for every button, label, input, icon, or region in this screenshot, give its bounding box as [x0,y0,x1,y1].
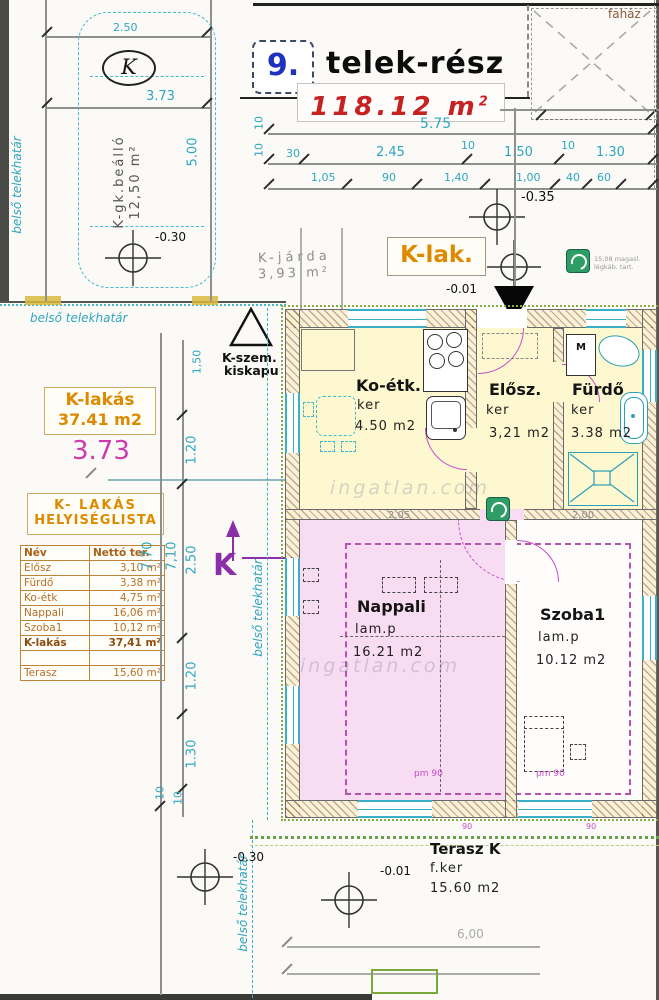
room-area-koetk: 4.50 m2 [355,419,416,434]
title-dashed-edge [527,5,529,97]
room-type-furdo: ker [571,403,594,418]
window [358,800,432,818]
dim-line [287,946,540,948]
parking-badge: K [121,55,137,79]
bed-pillow-line [524,728,564,729]
window [642,596,657,660]
table-row: Terasz15,60 m² [21,666,165,681]
plot-number: 9. [267,48,299,83]
door-size-label: pm 90 [536,769,565,779]
room-type-terasz: f.ker [430,861,463,876]
level-035: -0.35 [521,190,555,205]
dim-60: 60 [597,171,611,184]
hall-cabinet [482,333,538,359]
survey-point-icon [105,230,161,286]
plot-area-value: 118.12 m2 [310,92,492,122]
car-rearline [90,226,204,227]
dim-10: 10 [253,116,266,130]
survey-point-icon [321,872,377,928]
dim-150: 1.50 [504,145,533,160]
level-outside: -0.30 [233,850,264,864]
sink-drain [453,428,457,432]
table-row: Nappali16,06 m² [21,606,165,621]
room-area-terasz: 15.60 m2 [430,881,500,896]
dim-total-top: 5.75 [420,116,451,132]
room-name-terasz: Terasz K [430,840,500,858]
furniture [303,600,319,614]
stove-burner [429,353,445,369]
room-name-szoba1: Szoba1 [540,605,605,624]
window [285,558,300,616]
table-row: Ko-étk4,75 m² [21,591,165,606]
dim-10: 10 [154,786,167,800]
dim-line [160,333,162,995]
shower-cross-icon [568,452,636,504]
wall-bottom [285,800,657,818]
klak-box: K-lak. [387,237,486,276]
dim-chain: 2.50 [185,546,200,575]
col-name: Név [21,546,90,561]
dim-line [268,133,657,135]
room-type-szoba1: lam.p [538,630,580,645]
window-size-label: 90 [586,822,596,831]
garden-feature [371,969,438,994]
leader-line [108,479,288,481]
room-type-elosz: ker [486,403,509,418]
room-name-koetk: Ko-étk. [356,376,421,395]
door-opening [477,309,527,328]
window [348,309,426,328]
walkway-line [341,228,343,310]
dim-30: 30 [286,147,300,160]
window [285,393,300,453]
plot-area-box: 118.12 m2 [297,83,505,122]
door-opening [505,540,517,584]
table-row-empty [21,651,165,666]
tree-icon [486,497,510,521]
klak-label: K-lak. [400,242,473,268]
table-row-total: K-lakás37,41 m² [21,636,165,651]
fahaz-label: faház [608,7,641,21]
window-size-label: 90 [462,822,472,831]
floor-plan-canvas: 9. telek-rész 118.12 m2 faház 5.75 10 10… [0,0,659,1000]
level-entry: -0.01 [446,282,477,296]
boundary-dash-line [252,820,253,998]
dim-chain: 1.30 [185,740,200,769]
room-type-koetk: ker [357,398,380,413]
apartment-name: K-lakás [45,390,155,410]
road-curve [0,778,80,1000]
ground-line [500,109,659,111]
dim-10: 10 [172,791,185,805]
dim-tick [85,467,96,478]
boundary-label: belső telekhatár [251,559,265,656]
room-name-furdo: Fürdő [572,380,624,399]
dim-total-inner: 7,10 [165,542,180,571]
nightstand [570,744,586,760]
furniture [303,568,319,582]
dim-total-outer: 7.70 [141,542,156,571]
inner-dim: 2.05 [388,510,410,521]
dim-140: 1,40 [444,171,469,184]
terrace-edge-dots [250,836,659,839]
scan-edge-left [0,0,9,303]
kjarda-area: 3,93 m² [258,265,330,283]
boundary-label: belső telekhatár [236,854,250,951]
fence-post [25,296,61,305]
washing-machine: M [566,334,596,376]
dim-gate: 1,50 [191,350,204,375]
kjarda-label: K-járda [258,249,331,267]
road-curve-clip [0,778,80,1000]
level-terrace: -0.01 [380,864,411,878]
boundary-label: belső telekhatár [10,136,24,233]
stove-burner [446,332,462,348]
dim-40: 40 [566,171,580,184]
fahaz-cross-icon [530,7,654,117]
table-row: Szoba110,12 m² [21,621,165,636]
kitchen-sink-basin [431,401,461,429]
apartment-area: 37.41 m2 [45,410,155,429]
fahaz-outline [531,8,657,120]
kitchen-cabinet [301,329,355,371]
washing-machine-label: M [576,342,586,353]
shower-tray [568,452,638,506]
window [518,800,592,818]
dim-chain: 1.20 [185,662,200,691]
dim-105: 1,05 [311,171,336,184]
room-name-elosz: Elősz. [489,380,541,399]
room-name-nappali: Nappali [357,597,426,616]
axis-line [514,108,516,308]
survey-point-icon [177,849,233,905]
title-divider [253,3,659,6]
window [586,309,626,328]
dining-table [316,396,356,436]
bathtub-drain [631,414,635,418]
boundary-label: belső telekhatár [30,311,127,325]
dining-chair [341,441,356,452]
furniture [382,577,416,593]
plot-title: telek-rész [326,46,504,81]
dim-100: 1,00 [516,171,541,184]
utility-note: 15,08 magasl. légkáb. tart. [594,255,640,271]
plot-edge-dashed [654,0,657,188]
door-size-label: pm 90 [414,769,443,779]
dim-245: 2.45 [376,145,405,160]
window [285,686,300,744]
wall-elosz-furdo [553,328,564,510]
room-area-furdo: 3.38 m2 [571,426,632,441]
dim-chain: 1.20 [185,436,200,465]
furniture [424,577,458,593]
parking-badge-oval: K [102,50,156,86]
apartment-width-dim: 3.73 [72,436,130,466]
room-list-title-box: K- LAKÁS HELYISÉGLISTA [27,493,164,535]
bed [524,716,564,772]
dim-130: 1.30 [596,145,625,160]
parking-edge [45,0,47,301]
dim-10: 10 [253,143,266,157]
boundary-dash-line [267,308,268,820]
terrace-length-dim: 6,00 [457,927,484,941]
fence-post [192,296,218,305]
watermark: ingatlan.com [300,655,460,677]
dining-chair [303,402,314,417]
dining-chair [320,441,335,452]
dim-10: 10 [461,139,475,152]
watermark: ingatlan.com [330,477,490,499]
room-type-nappali: lam.p [355,622,397,637]
compass-letter: K [213,548,236,583]
table-row: Fürdő3,38 m² [21,576,165,591]
dim-10: 10 [561,139,575,152]
room-area-szoba1: 10.12 m2 [536,653,606,668]
room-list-title: K- LAKÁS [28,498,163,513]
wall-middle [285,509,657,520]
tree-icon [566,249,590,273]
inner-dim: 2,00 [572,510,594,521]
apartment-box: K-lakás 37.41 m2 [44,387,156,435]
stove-burner [427,334,443,350]
dim-90: 90 [382,171,396,184]
room-list-title: HELYISÉGLISTA [28,513,163,528]
room-area-elosz: 3,21 m2 [489,426,550,441]
setback-dashed-line [540,119,652,120]
dim-line [268,188,657,190]
kiskapu-label: kiskapu [224,363,279,378]
stove-burner [448,351,464,367]
